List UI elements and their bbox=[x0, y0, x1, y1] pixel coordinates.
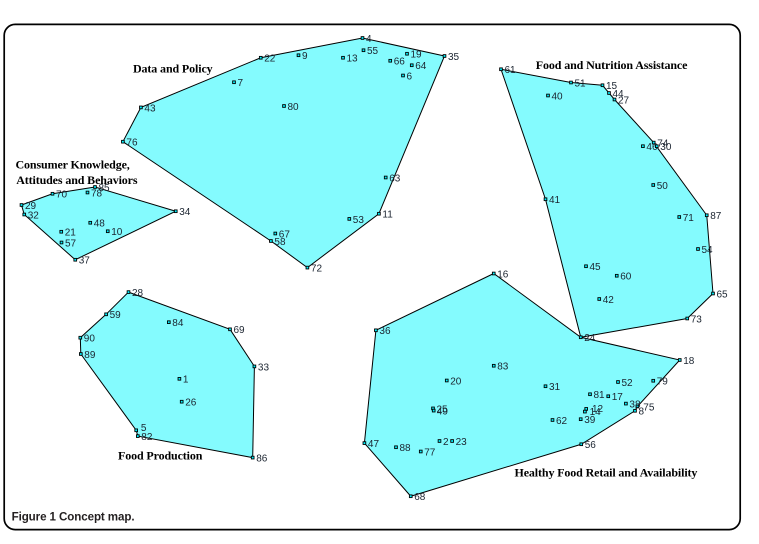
svg-text:90: 90 bbox=[84, 334, 96, 345]
svg-text:30: 30 bbox=[660, 142, 672, 153]
svg-text:76: 76 bbox=[126, 138, 138, 149]
svg-text:89: 89 bbox=[84, 350, 96, 361]
svg-text:80: 80 bbox=[288, 102, 300, 113]
svg-text:16: 16 bbox=[497, 269, 509, 280]
svg-text:2: 2 bbox=[443, 437, 449, 448]
svg-text:72: 72 bbox=[311, 264, 323, 275]
svg-text:64: 64 bbox=[415, 61, 427, 72]
svg-text:62: 62 bbox=[556, 416, 568, 427]
svg-text:79: 79 bbox=[657, 377, 669, 388]
svg-text:17: 17 bbox=[612, 392, 624, 403]
svg-text:23: 23 bbox=[456, 437, 468, 448]
svg-text:59: 59 bbox=[110, 310, 122, 321]
svg-text:45: 45 bbox=[590, 262, 602, 273]
svg-text:75: 75 bbox=[643, 402, 655, 413]
svg-text:50: 50 bbox=[657, 181, 669, 192]
svg-text:83: 83 bbox=[497, 362, 509, 373]
svg-text:7: 7 bbox=[238, 78, 244, 89]
svg-text:86: 86 bbox=[256, 454, 268, 465]
svg-text:63: 63 bbox=[389, 173, 401, 184]
svg-text:65: 65 bbox=[717, 289, 729, 300]
svg-text:5: 5 bbox=[141, 423, 147, 434]
svg-text:1: 1 bbox=[183, 375, 189, 386]
svg-text:34: 34 bbox=[179, 207, 191, 218]
svg-text:Healthy Food Retail and Availa: Healthy Food Retail and Availability bbox=[515, 466, 698, 480]
svg-text:13: 13 bbox=[347, 54, 359, 65]
svg-text:37: 37 bbox=[79, 256, 91, 267]
svg-text:43: 43 bbox=[144, 103, 156, 114]
svg-text:71: 71 bbox=[683, 213, 695, 224]
svg-text:Food and Nutrition Assistance: Food and Nutrition Assistance bbox=[536, 58, 688, 72]
svg-text:49: 49 bbox=[437, 407, 449, 418]
svg-text:69: 69 bbox=[234, 325, 246, 336]
svg-text:48: 48 bbox=[94, 219, 106, 230]
svg-text:55: 55 bbox=[367, 46, 379, 57]
svg-text:31: 31 bbox=[549, 382, 561, 393]
svg-text:6: 6 bbox=[407, 71, 413, 82]
svg-text:Figure 1 Concept map.: Figure 1 Concept map. bbox=[12, 511, 135, 524]
svg-text:27: 27 bbox=[618, 95, 630, 106]
svg-text:14: 14 bbox=[590, 407, 602, 418]
svg-text:61: 61 bbox=[505, 65, 517, 76]
svg-text:35: 35 bbox=[448, 52, 460, 63]
svg-text:88: 88 bbox=[400, 443, 412, 454]
svg-text:Food Production: Food Production bbox=[118, 449, 203, 463]
svg-text:28: 28 bbox=[132, 288, 144, 299]
svg-text:24: 24 bbox=[584, 333, 596, 344]
svg-text:Consumer Knowledge,: Consumer Knowledge, bbox=[16, 158, 130, 172]
svg-text:53: 53 bbox=[353, 215, 365, 226]
svg-text:73: 73 bbox=[691, 314, 703, 325]
svg-text:60: 60 bbox=[620, 272, 632, 283]
svg-text:9: 9 bbox=[302, 51, 308, 62]
svg-text:56: 56 bbox=[585, 440, 597, 451]
svg-text:47: 47 bbox=[368, 439, 380, 450]
svg-text:11: 11 bbox=[382, 210, 393, 221]
svg-text:33: 33 bbox=[258, 362, 270, 373]
svg-text:52: 52 bbox=[622, 378, 634, 389]
svg-text:21: 21 bbox=[65, 228, 77, 239]
svg-text:81: 81 bbox=[594, 390, 606, 401]
svg-text:26: 26 bbox=[185, 398, 197, 409]
svg-text:18: 18 bbox=[683, 356, 695, 367]
svg-text:67: 67 bbox=[279, 229, 291, 240]
svg-text:22: 22 bbox=[264, 54, 276, 65]
svg-text:4: 4 bbox=[366, 34, 372, 45]
svg-text:57: 57 bbox=[65, 238, 77, 249]
svg-text:40: 40 bbox=[552, 91, 564, 102]
svg-text:10: 10 bbox=[111, 227, 123, 238]
svg-text:78: 78 bbox=[91, 188, 103, 199]
svg-text:68: 68 bbox=[414, 492, 426, 503]
svg-text:38: 38 bbox=[629, 400, 641, 411]
svg-text:19: 19 bbox=[411, 50, 423, 61]
svg-text:87: 87 bbox=[710, 211, 722, 222]
svg-text:Data and Policy: Data and Policy bbox=[133, 62, 213, 76]
svg-text:77: 77 bbox=[424, 447, 436, 458]
svg-text:36: 36 bbox=[379, 326, 391, 337]
svg-text:51: 51 bbox=[575, 78, 587, 89]
svg-text:Attitudes and Behaviors: Attitudes and Behaviors bbox=[16, 173, 138, 187]
svg-text:20: 20 bbox=[450, 376, 462, 387]
svg-text:32: 32 bbox=[28, 210, 40, 221]
svg-text:42: 42 bbox=[603, 295, 615, 306]
svg-text:66: 66 bbox=[394, 57, 406, 68]
svg-text:54: 54 bbox=[702, 245, 714, 256]
svg-text:84: 84 bbox=[172, 318, 184, 329]
svg-text:41: 41 bbox=[549, 195, 561, 206]
svg-text:70: 70 bbox=[56, 190, 68, 201]
